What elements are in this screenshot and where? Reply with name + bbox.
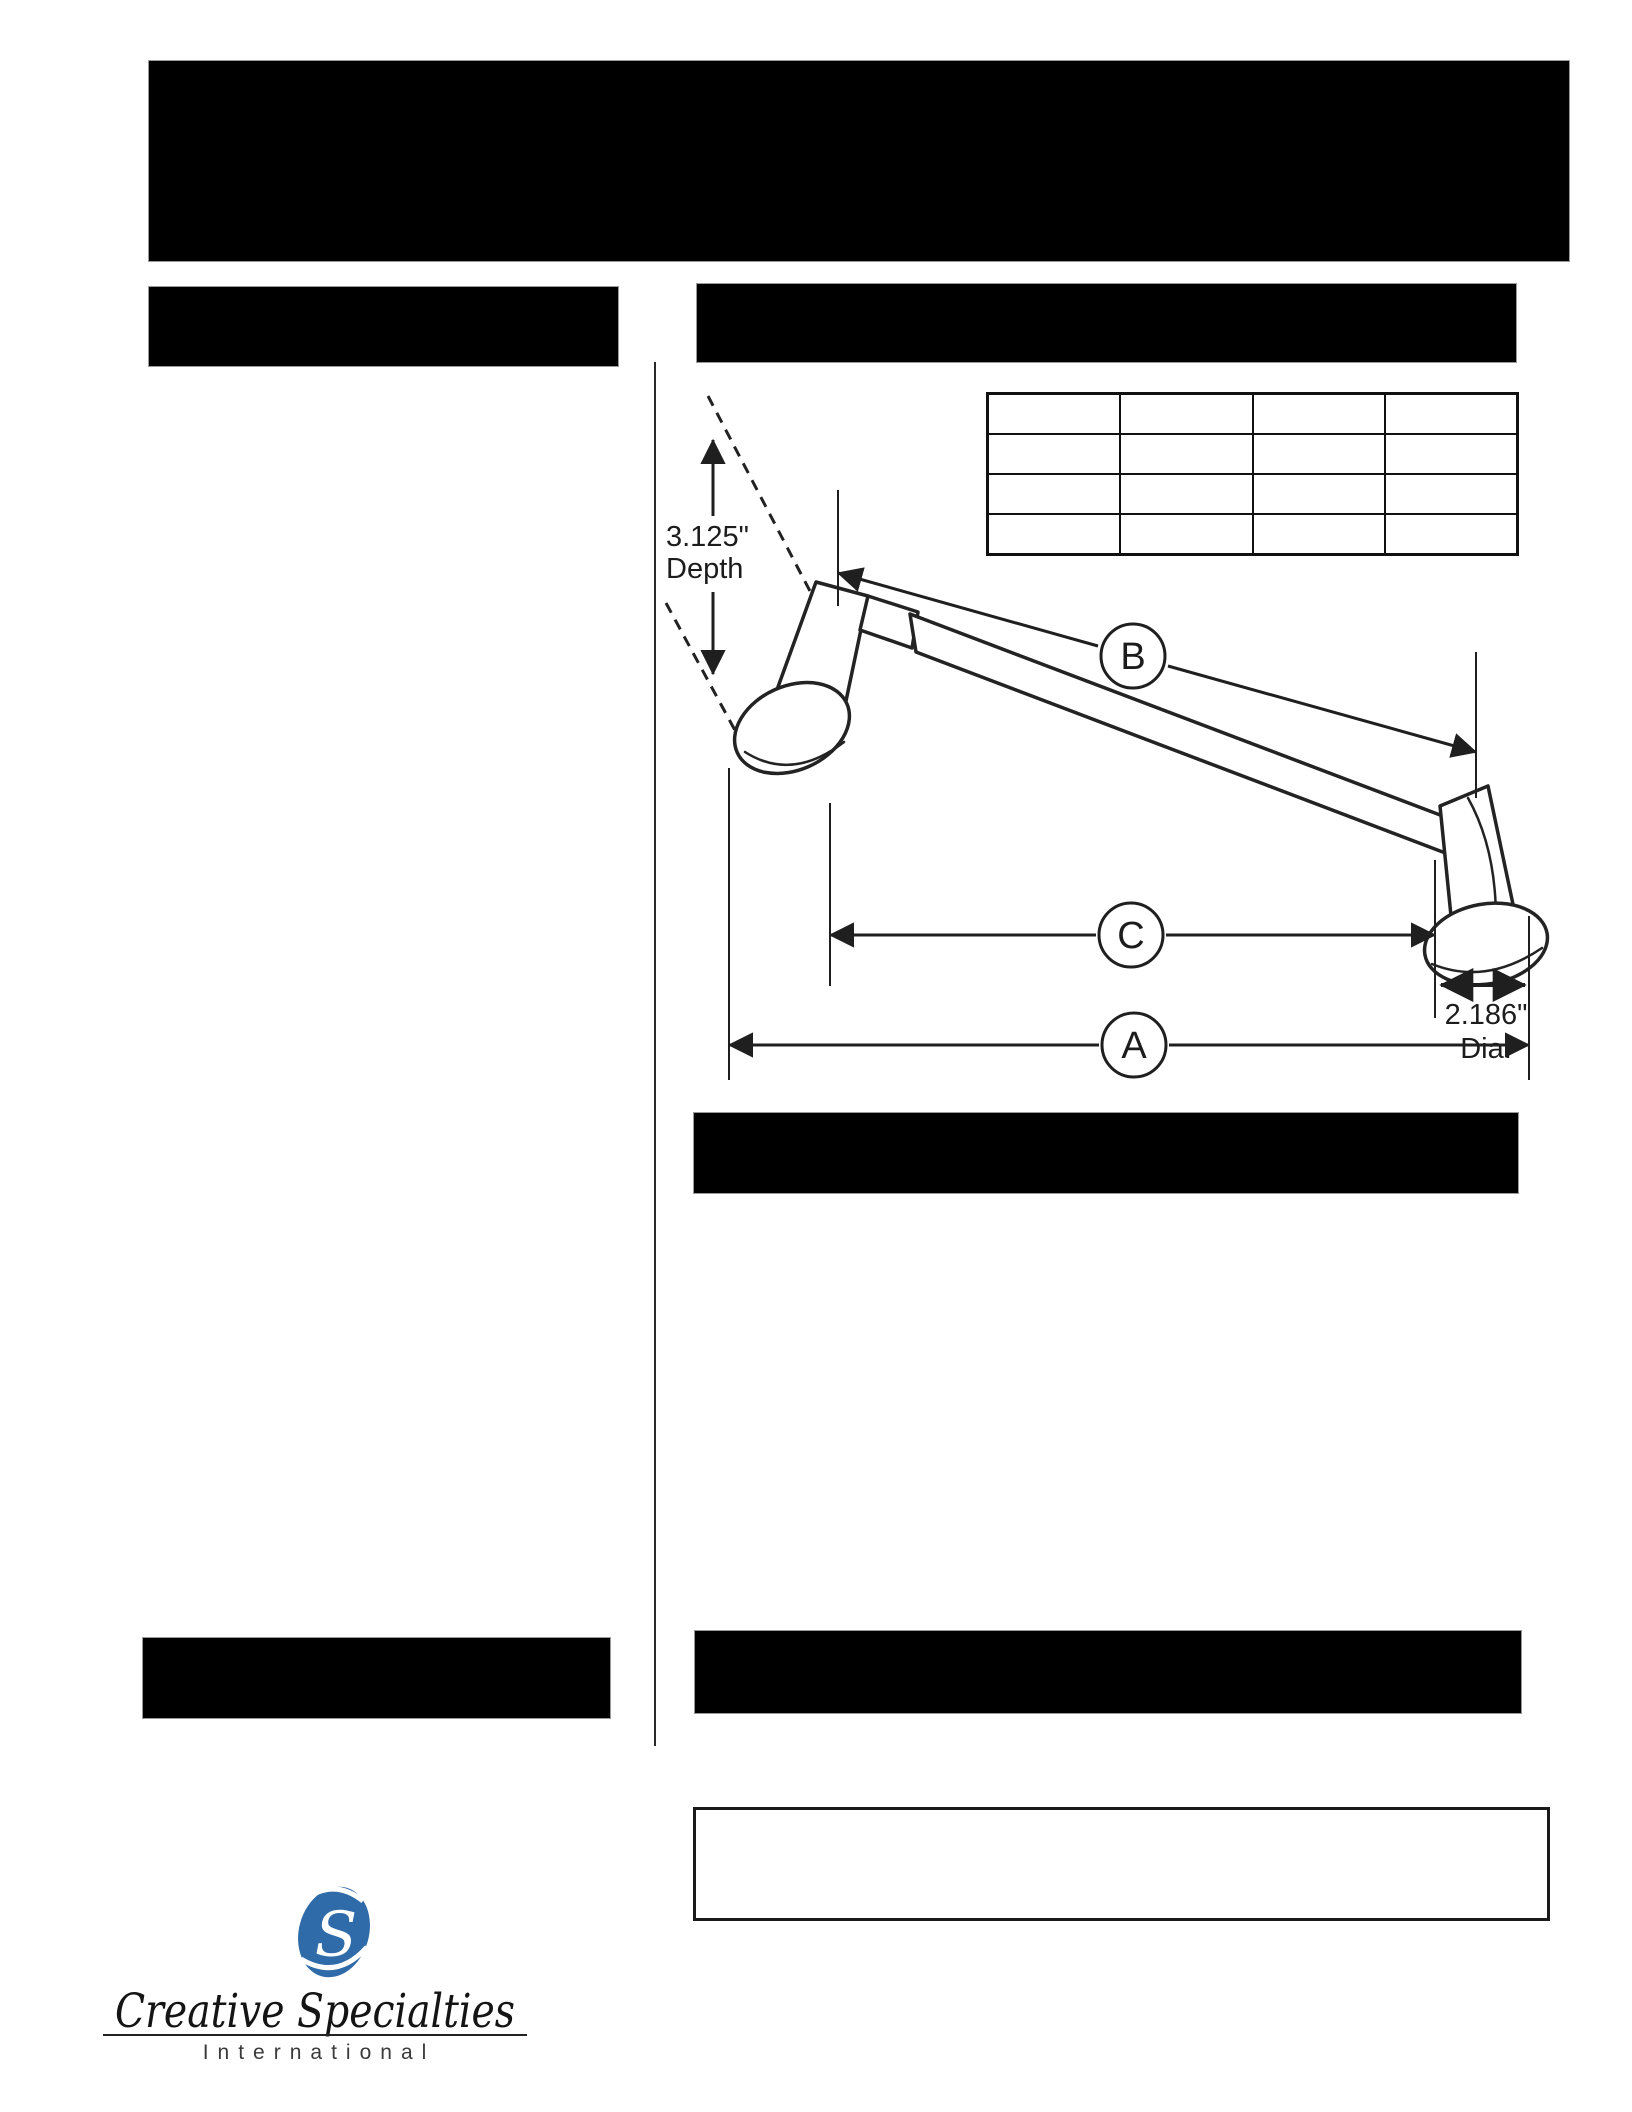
spec-table-cell xyxy=(988,434,1121,474)
spec-table-cell xyxy=(1253,434,1386,474)
spec-table-cell xyxy=(1120,434,1253,474)
a-label: A xyxy=(1121,1025,1147,1067)
spec-table-cell xyxy=(988,514,1121,555)
bar xyxy=(910,614,1448,854)
spec-table-row xyxy=(988,394,1518,435)
depth-dimension: 3.125" Depth xyxy=(662,440,764,674)
header-bar xyxy=(149,61,1569,261)
depth-word-label: Depth xyxy=(666,553,743,585)
spec-table-body xyxy=(988,394,1518,555)
logo-tagline: International xyxy=(203,2041,436,2064)
section-bar-left-1 xyxy=(149,287,618,366)
logo-monogram-letter: S xyxy=(315,1898,357,1971)
spec-table-row xyxy=(988,514,1518,555)
right-post-base xyxy=(1418,894,1554,994)
diameter-value-label: 2.186" xyxy=(1445,999,1528,1031)
document-page: 3.125" Depth B xyxy=(0,0,1632,2112)
spec-table-row xyxy=(988,474,1518,514)
c-dimension: C xyxy=(830,803,1435,1018)
section-bar-left-2 xyxy=(143,1638,610,1718)
spec-table-cell xyxy=(1385,514,1518,555)
company-logo: S Creative Specialties International xyxy=(95,1875,535,2085)
section-bar-right-1 xyxy=(697,284,1516,362)
diameter-word-label: Dia. xyxy=(1460,1033,1512,1065)
spec-table-cell xyxy=(988,394,1121,435)
section-bar-right-3 xyxy=(695,1631,1521,1713)
left-post-socket xyxy=(860,596,918,648)
spec-table-cell xyxy=(988,474,1121,514)
depth-value-label: 3.125" xyxy=(666,521,749,553)
spec-table-cell xyxy=(1253,474,1386,514)
spec-table-cell xyxy=(1120,514,1253,555)
note-box xyxy=(693,1807,1550,1921)
spec-table-cell xyxy=(1253,514,1386,555)
c-label: C xyxy=(1117,915,1144,957)
spec-table-row xyxy=(988,434,1518,474)
spec-table-cell xyxy=(1120,394,1253,435)
spec-table-cell xyxy=(1385,394,1518,435)
spec-table-cell xyxy=(1253,394,1386,435)
spec-table xyxy=(986,392,1519,556)
spec-table-cell xyxy=(1120,474,1253,514)
section-bar-right-2 xyxy=(694,1113,1518,1193)
b-label: B xyxy=(1120,636,1145,678)
logo-company-name: Creative Specialties xyxy=(115,1984,515,2039)
spec-table-cell xyxy=(1385,474,1518,514)
spec-table-cell xyxy=(1385,434,1518,474)
logo-monogram: S xyxy=(288,1878,381,1986)
